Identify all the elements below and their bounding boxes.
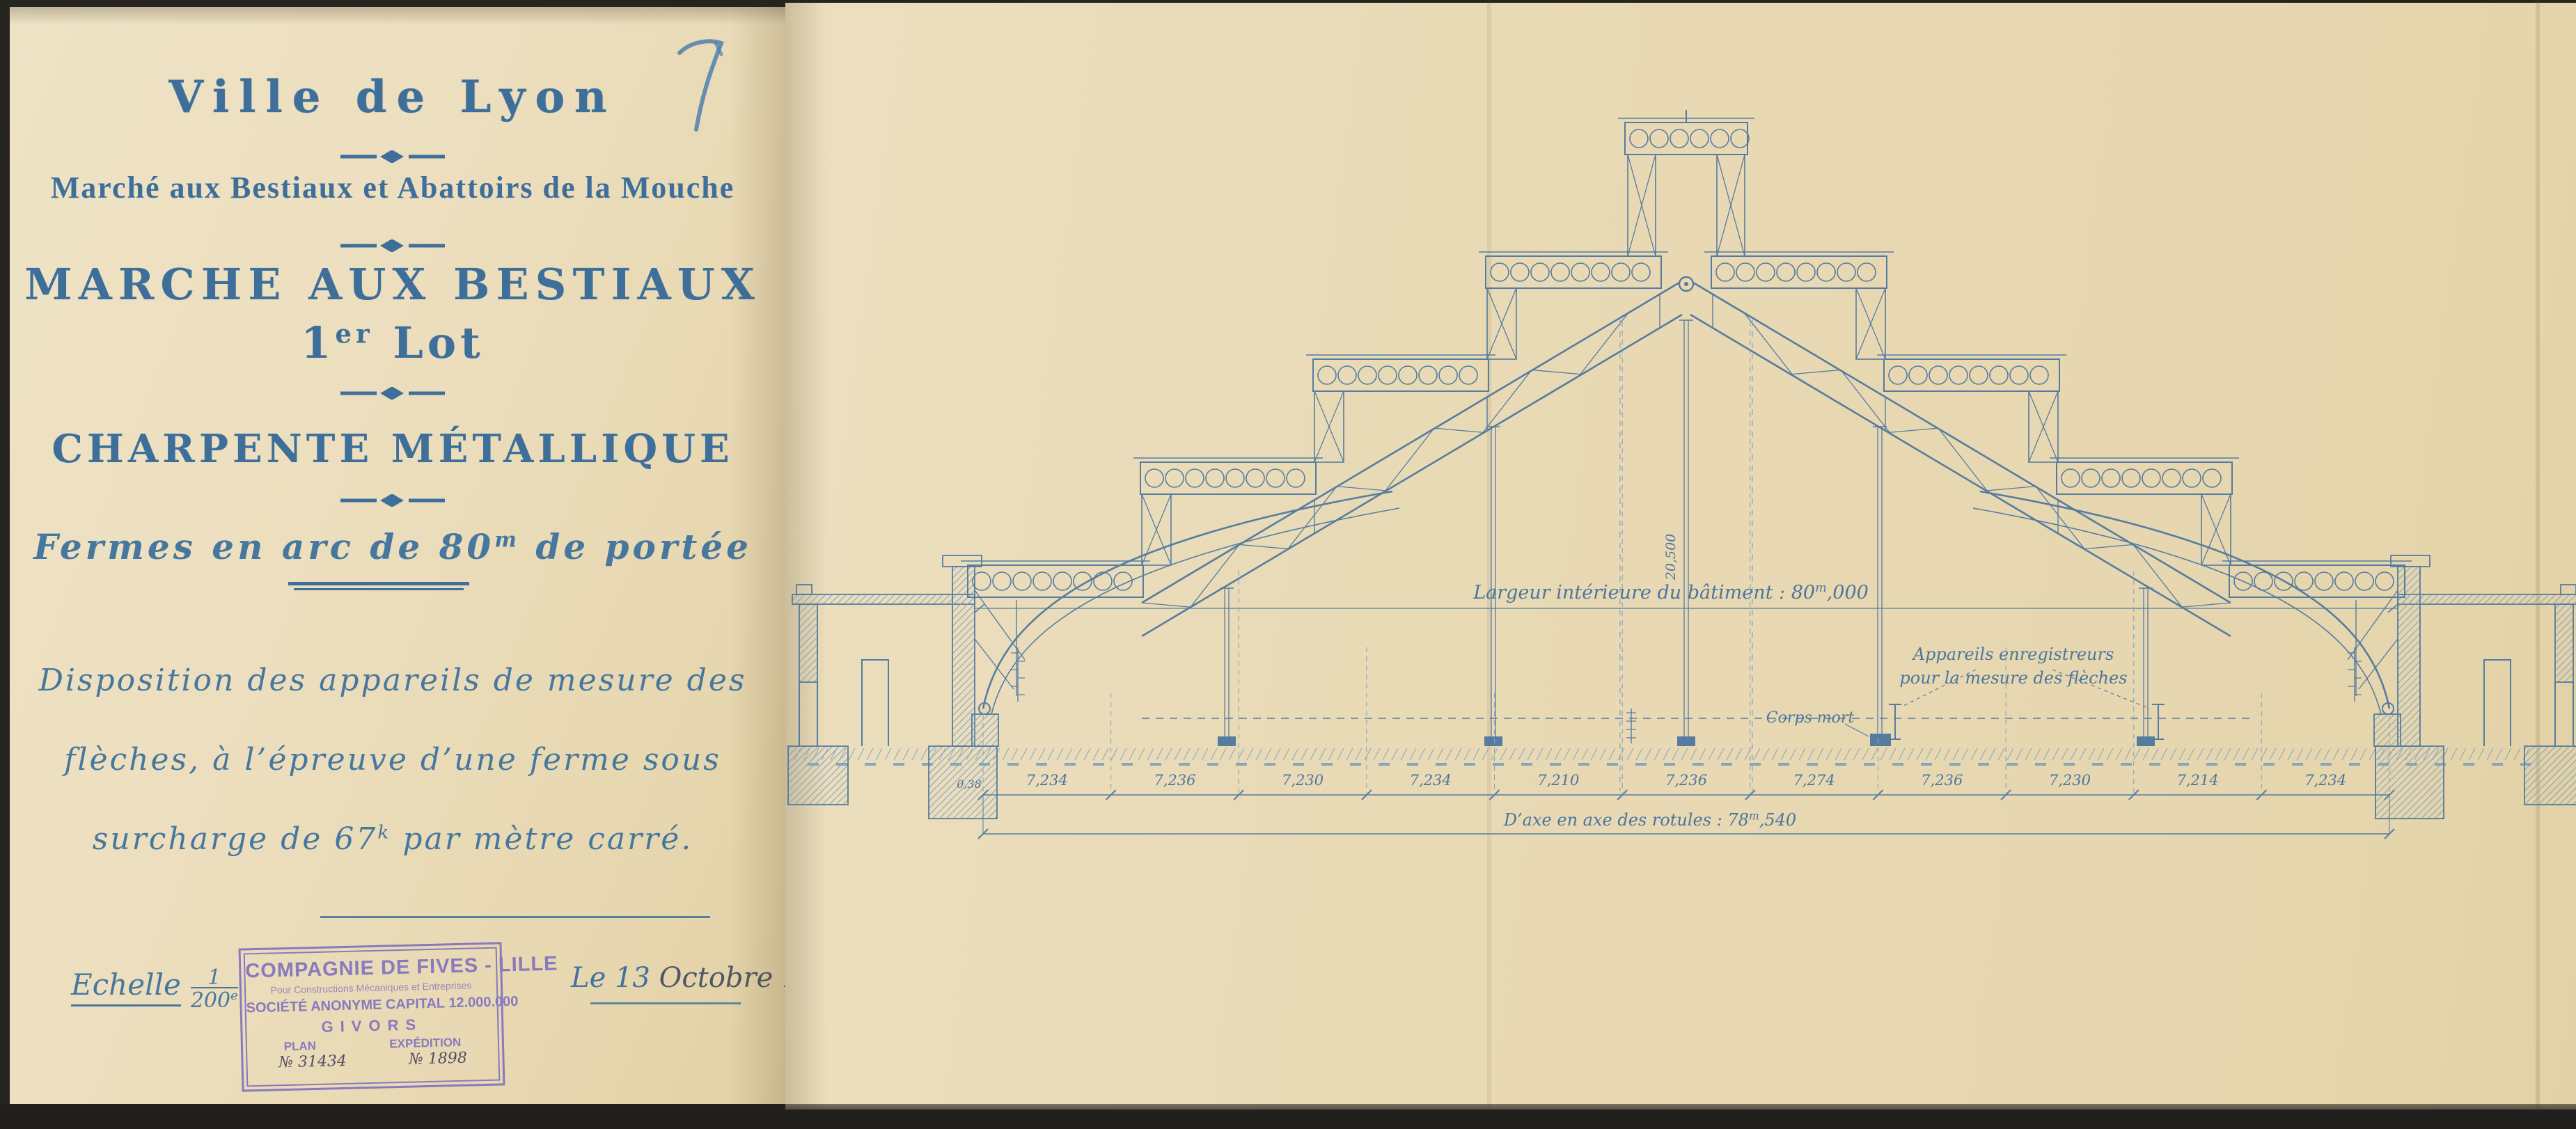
span-dimension-value: 7,214 [2176, 772, 2218, 789]
span-dimension-value: 7,210 [1537, 772, 1579, 789]
span-dimension-value: 7,234 [1410, 772, 1452, 789]
scanned-sheet: Ville de Lyon Marché aux Bestiaux et Aba… [0, 0, 2576, 1129]
span-dimension-value: 7,234 [2304, 772, 2346, 789]
span-dimension-value: 7,230 [2049, 772, 2091, 789]
axis-to-axis-label: D’axe en axe des rotules : 78m,540 [1503, 810, 1796, 830]
scan-edge [0, 1104, 2576, 1129]
apparatus-label-line1: Appareils enregistreurs [1912, 645, 2114, 664]
offset-dimension: 0,38 [957, 777, 982, 791]
apparatus-label-line2: pour la mesure des flèches [1899, 668, 2127, 688]
span-dimension-value: 7,234 [1026, 772, 1068, 789]
span-dimension-value: 7,236 [1154, 772, 1195, 789]
interior-width-label: Largeur intérieure du bâtiment : 80m,000 [1472, 582, 1869, 603]
corps-mort-label: Corps mort [1766, 709, 1855, 727]
span-dimension-value: 7,230 [1282, 772, 1324, 789]
truss-cross-section-drawing: 7,2347,2367,2307,2347,2107,2367,2747,236… [0, 0, 2576, 1129]
height-dimension-vertical: 20,500 [1663, 534, 1679, 581]
span-dimension-value: 7,236 [1921, 772, 1963, 789]
drawing-linework [788, 110, 2576, 839]
span-dimension-value: 7,236 [1665, 772, 1707, 789]
span-dimension-value: 7,274 [1793, 772, 1835, 789]
